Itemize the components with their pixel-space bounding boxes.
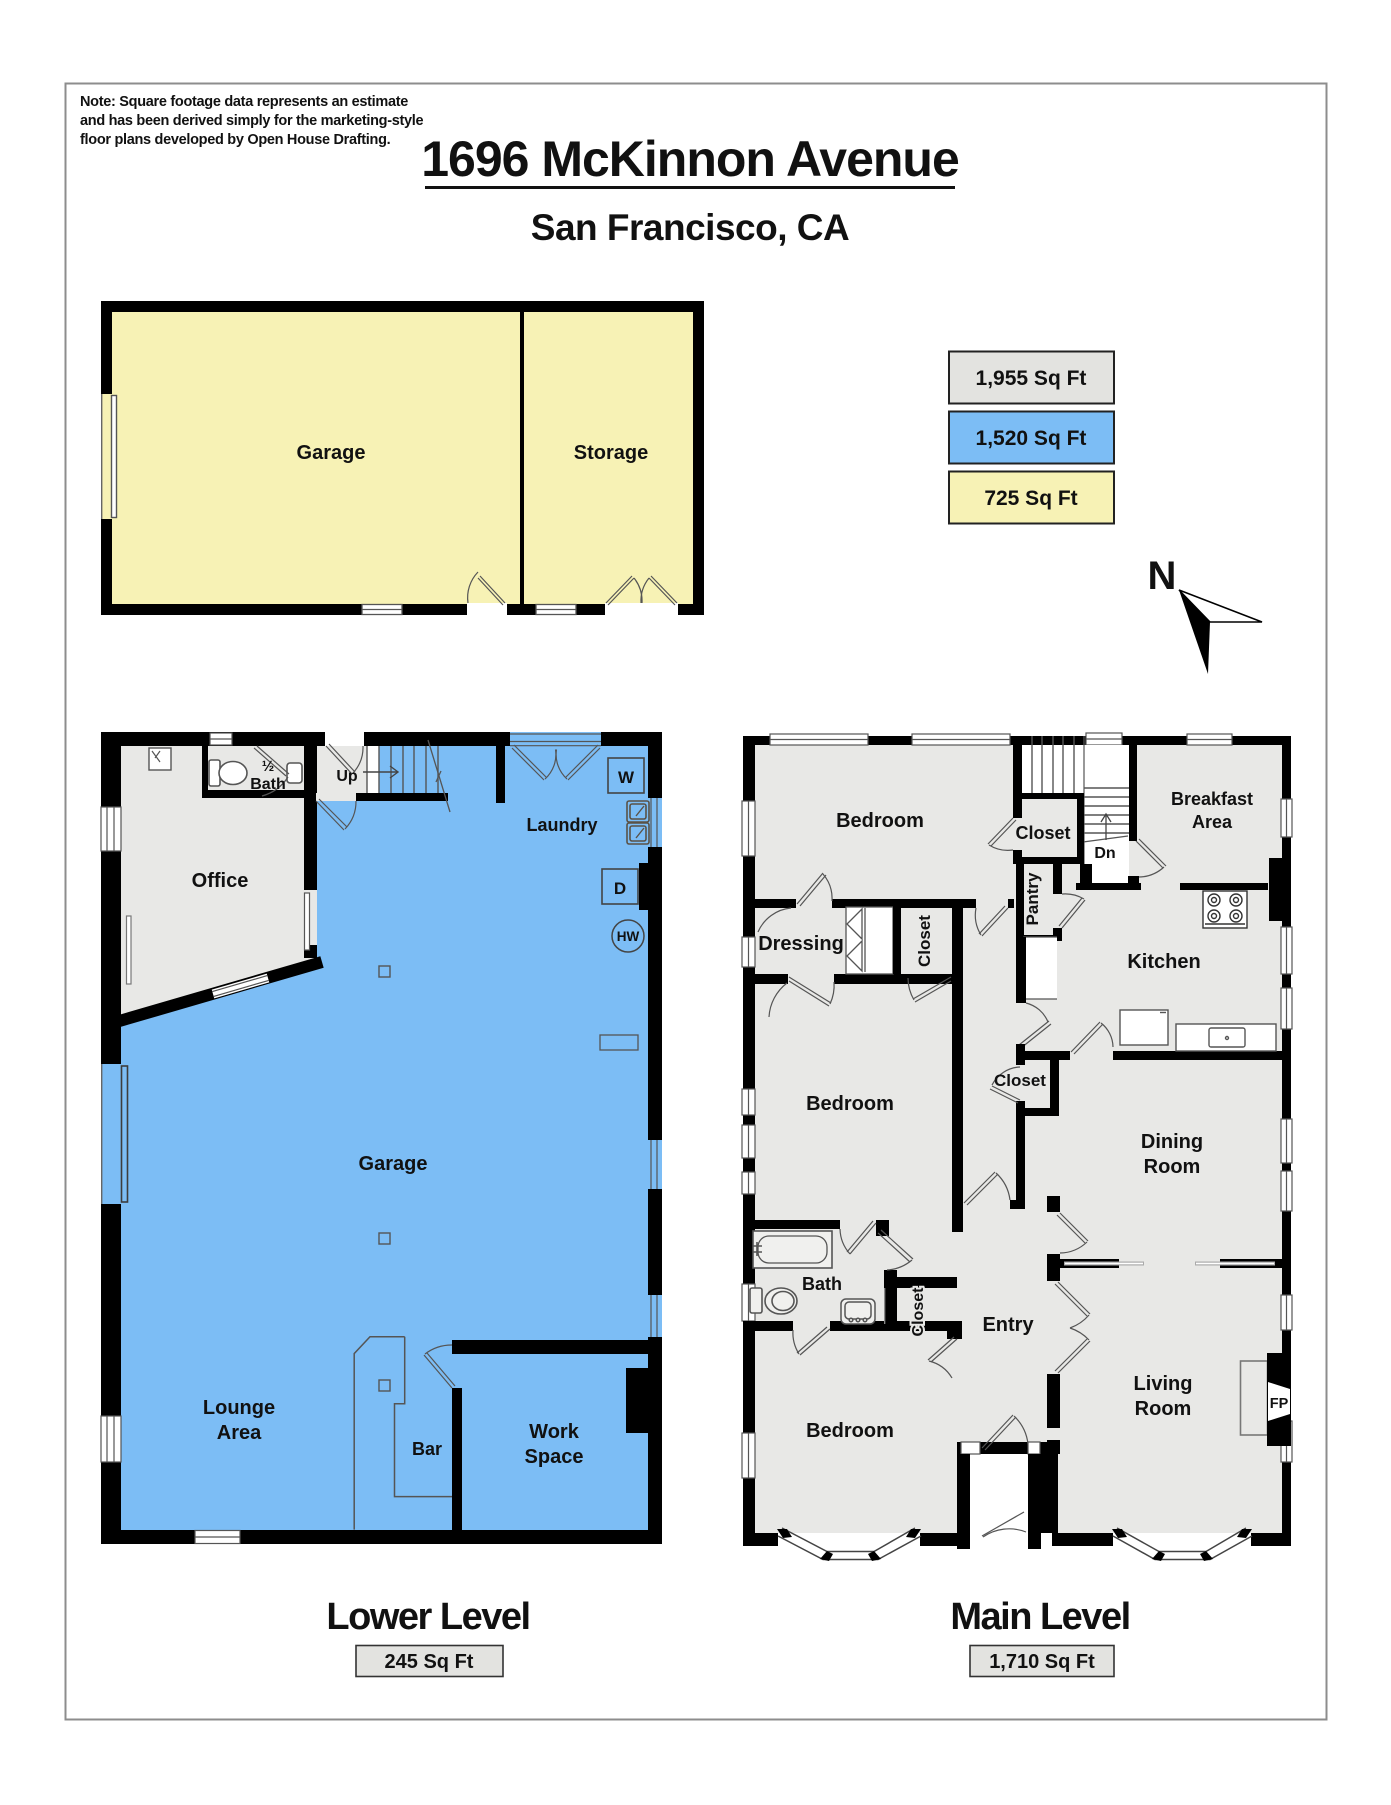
svg-text:Bedroom: Bedroom bbox=[806, 1420, 894, 1442]
svg-text:725 Sq Ft: 725 Sq Ft bbox=[984, 487, 1077, 510]
svg-text:Note: Square footage data repr: Note: Square footage data represents an … bbox=[80, 94, 408, 110]
svg-text:W: W bbox=[618, 768, 635, 787]
svg-text:Dining: Dining bbox=[1141, 1131, 1203, 1153]
svg-text:Room: Room bbox=[1135, 1398, 1192, 1420]
svg-text:1,955 Sq Ft: 1,955 Sq Ft bbox=[976, 367, 1087, 390]
svg-text:Closet: Closet bbox=[915, 915, 934, 967]
svg-text:Area: Area bbox=[1192, 812, 1233, 832]
svg-text:Space: Space bbox=[525, 1446, 584, 1468]
svg-text:Breakfast: Breakfast bbox=[1171, 789, 1253, 809]
svg-text:Bath: Bath bbox=[250, 776, 286, 793]
svg-text:Lower Level: Lower Level bbox=[326, 1596, 529, 1638]
svg-text:1696 McKinnon Avenue: 1696 McKinnon Avenue bbox=[421, 131, 959, 187]
svg-text:Office: Office bbox=[192, 870, 249, 892]
svg-text:Living: Living bbox=[1134, 1373, 1193, 1395]
svg-text:Pantry: Pantry bbox=[1023, 872, 1042, 925]
svg-text:Closet: Closet bbox=[1015, 823, 1070, 843]
svg-text:HW: HW bbox=[617, 929, 640, 944]
svg-text:FP: FP bbox=[1270, 1396, 1289, 1412]
svg-text:245 Sq Ft: 245 Sq Ft bbox=[385, 1651, 474, 1673]
svg-text:and has been derived simply fo: and has been derived simply for the mark… bbox=[80, 113, 424, 129]
svg-text:Dn: Dn bbox=[1094, 845, 1115, 862]
svg-text:Garage: Garage bbox=[359, 1153, 428, 1175]
svg-text:Bar: Bar bbox=[412, 1439, 442, 1459]
svg-text:½: ½ bbox=[262, 758, 275, 775]
svg-text:Laundry: Laundry bbox=[526, 815, 597, 835]
svg-text:Up: Up bbox=[336, 768, 358, 785]
svg-text:Work: Work bbox=[529, 1421, 580, 1443]
svg-text:Bedroom: Bedroom bbox=[836, 810, 924, 832]
svg-text:Room: Room bbox=[1144, 1156, 1201, 1178]
svg-text:Dressing: Dressing bbox=[758, 933, 844, 955]
svg-text:Main Level: Main Level bbox=[950, 1596, 1129, 1638]
svg-text:Lounge: Lounge bbox=[203, 1397, 275, 1419]
svg-text:San Francisco, CA: San Francisco, CA bbox=[531, 207, 849, 248]
svg-text:Garage: Garage bbox=[297, 442, 366, 464]
svg-text:Closet: Closet bbox=[994, 1071, 1046, 1090]
svg-text:Entry: Entry bbox=[982, 1314, 1034, 1336]
svg-text:Storage: Storage bbox=[574, 442, 648, 464]
svg-text:Kitchen: Kitchen bbox=[1127, 951, 1200, 973]
svg-text:Bedroom: Bedroom bbox=[806, 1093, 894, 1115]
svg-text:floor plans developed by Open: floor plans developed by Open House Draf… bbox=[80, 132, 391, 148]
svg-text:N: N bbox=[1148, 554, 1177, 598]
svg-text:Closet: Closet bbox=[910, 1287, 927, 1337]
svg-text:D: D bbox=[614, 879, 626, 898]
svg-text:1,520 Sq Ft: 1,520 Sq Ft bbox=[976, 427, 1087, 450]
svg-text:1,710 Sq Ft: 1,710 Sq Ft bbox=[989, 1651, 1095, 1673]
svg-text:Area: Area bbox=[217, 1422, 262, 1444]
svg-text:Bath: Bath bbox=[802, 1274, 842, 1294]
